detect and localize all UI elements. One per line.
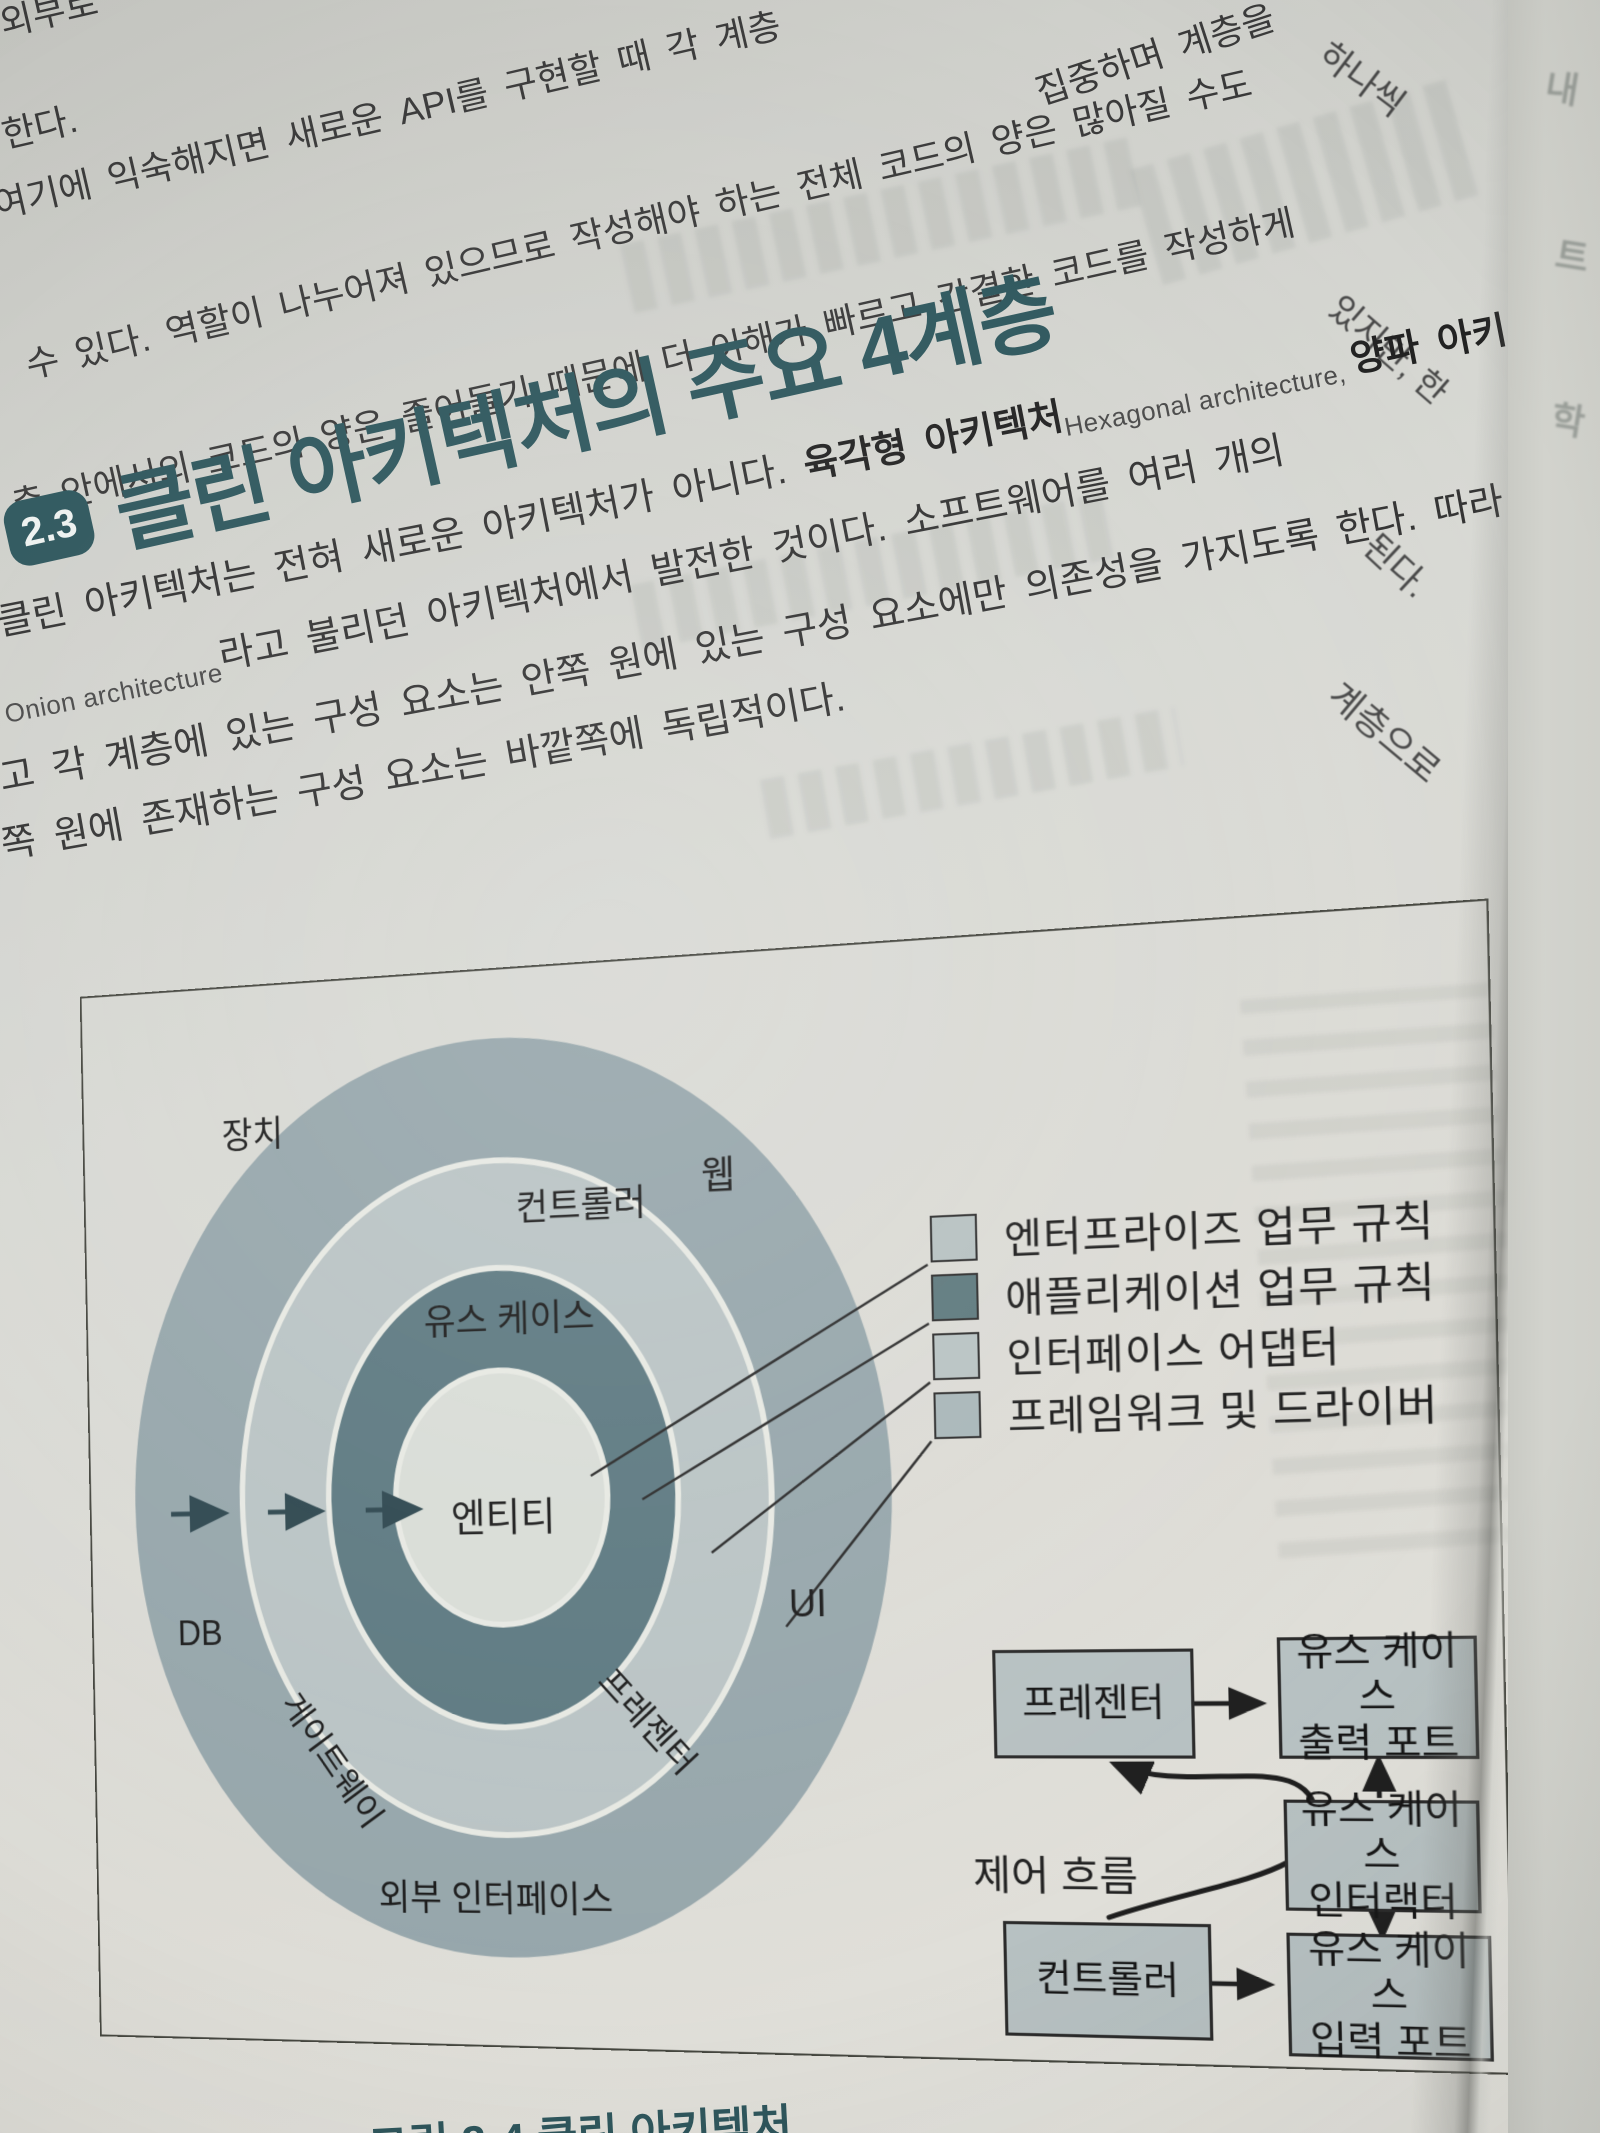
top-text-line-tail: 하나씩 (1309, 28, 1417, 127)
dependency-arrow (366, 1509, 417, 1510)
next-page-edge (1508, 0, 1600, 2133)
flow-arrow-controller-to-input (1212, 1983, 1268, 1984)
flow-box-label: 프레젠터 (1022, 1681, 1166, 1726)
legend-row: 프레임워크 및 드라이버 (933, 1377, 1439, 1439)
legend-swatch-enterprise (930, 1214, 978, 1263)
dependency-arrow (268, 1511, 319, 1512)
legend-row: 인터페이스 어댑터 (932, 1316, 1437, 1381)
flow-box-label: 컨트롤러 (1036, 1956, 1180, 2004)
legend-swatch-frameworks (933, 1391, 981, 1439)
ring-label-entity: 엔티티 (450, 1485, 555, 1544)
legend-swatch-application (931, 1273, 979, 1322)
flow-box-presenter: 프레젠터 (992, 1649, 1195, 1759)
ring-label-ui: UI (788, 1583, 827, 1627)
ring-label-web: 웹 (700, 1143, 735, 1200)
dependency-arrow (171, 1513, 223, 1514)
control-flow-label: 제어 흐름 (973, 1842, 1139, 1903)
top-text-fragment: 외부로 (0, 0, 103, 47)
legend-swatch-interface-adapters (932, 1332, 980, 1380)
ring-label-db: DB (177, 1613, 222, 1653)
book-page-photo: 외부로 한다. 여기에 익숙해지면 새로운 API를 구현할 때 각 계층 집중… (0, 0, 1600, 2133)
flow-box-controller: 컨트롤러 (1003, 1921, 1213, 2041)
figure-legend: 엔터프라이즈 업무 규칙 애플리케이션 업무 규칙 인터페이스 어댑터 프레임워… (930, 1193, 1440, 1452)
figure-caption: 그림 2-4 클린 아키텍처 (367, 2089, 794, 2133)
ring-label-device: 장치 (221, 1104, 283, 1159)
section-number: 2.3 (17, 500, 81, 556)
legend-label: 프레임워크 및 드라이버 (1007, 1371, 1439, 1444)
body-line-tail: 계층으로 (1319, 668, 1454, 793)
ring-label-external-interface: 외부 인터페이스 (378, 1868, 614, 1924)
showthrough-smudge (760, 707, 1184, 839)
ring-label-controller: 컨트롤러 (515, 1172, 647, 1231)
ring-label-usecase: 유스 케이스 (423, 1286, 595, 1345)
clean-architecture-figure: 장치 컨트롤러 웹 유스 케이스 엔티티 DB 게이트웨이 프레젠터 UI 외부… (80, 898, 1515, 2075)
body-text-english: Hexagonal architecture, (1062, 357, 1356, 443)
legend-label: 인터페이스 어댑터 (1006, 1313, 1341, 1384)
top-text-fragment: 한다. (0, 91, 82, 159)
